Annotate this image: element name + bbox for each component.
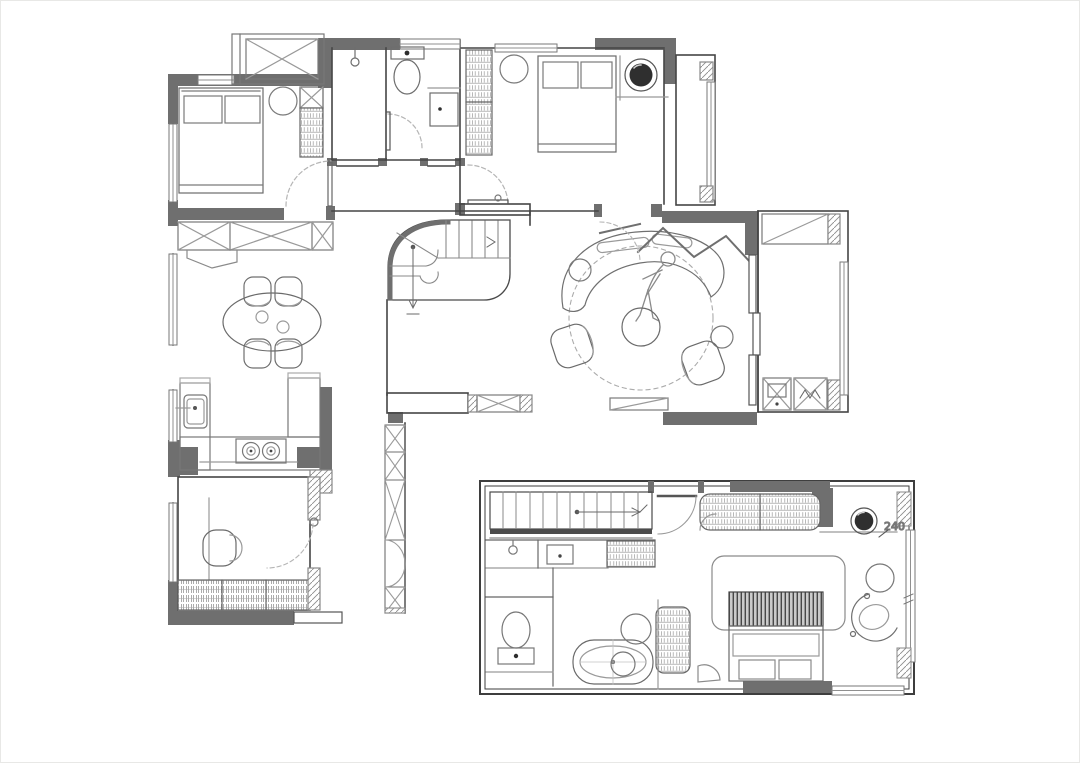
dimension-240: 240 — [879, 520, 905, 537]
shower-head-icon — [509, 540, 517, 554]
bedside-lamp — [851, 508, 877, 534]
toilet — [486, 612, 553, 672]
kitchen-sink — [176, 395, 207, 428]
side-table-left — [569, 259, 591, 281]
washing-machine — [763, 378, 791, 410]
washbasin — [547, 545, 573, 564]
bedside-round-table — [269, 87, 297, 115]
stair-landing — [390, 250, 438, 283]
window-bottom — [832, 686, 904, 695]
tv-cabinet — [610, 398, 668, 410]
door-arc — [286, 161, 331, 206]
wardrobe — [700, 494, 820, 530]
main-floor-plan — [168, 34, 848, 625]
dining-table — [223, 293, 321, 351]
side-table-right — [711, 326, 733, 348]
door-leaf — [328, 162, 332, 206]
sill-hatch — [828, 380, 840, 410]
floorplan-page: 240 — [0, 0, 1080, 763]
bathroom-main — [351, 47, 460, 150]
upper-floor-plan: 240 — [480, 481, 915, 695]
dryer-unit — [794, 378, 827, 410]
wardrobe — [300, 87, 323, 157]
bathtub — [573, 640, 653, 684]
floorplan-drawing: 240 — [0, 0, 1080, 763]
bottom-wall-extension — [294, 612, 342, 623]
round-stool — [621, 614, 651, 644]
balcony-cabinet — [762, 214, 840, 244]
south-wall-cabinet — [468, 395, 532, 412]
bookshelf-row — [178, 580, 310, 610]
window-bedroom-right-top — [495, 44, 557, 52]
dining-room — [178, 222, 333, 368]
swivel-chair — [851, 594, 898, 642]
shower-head-icon — [351, 48, 359, 66]
round-table — [866, 564, 894, 592]
treads — [503, 492, 638, 529]
toilet — [391, 47, 424, 94]
window-top-bedroom-left — [198, 75, 234, 85]
entry-door — [658, 496, 696, 534]
shelf-unit — [656, 607, 690, 673]
door-arc — [388, 114, 422, 148]
armchair-right — [677, 338, 728, 389]
kitchen — [176, 373, 332, 493]
stair-edge-band — [490, 529, 652, 534]
sill-bottom-right — [897, 648, 911, 678]
staircase-main — [388, 220, 510, 314]
window-balcony-bedroom-right — [707, 82, 715, 200]
round-stool-small — [611, 652, 635, 676]
wall-cabinet-row — [178, 222, 333, 268]
bedside-lamp — [616, 59, 668, 97]
bed — [538, 56, 620, 152]
door-arc — [468, 165, 508, 204]
bed — [729, 592, 823, 681]
corner-stool — [698, 665, 720, 682]
staircase-upper — [490, 492, 696, 538]
walls — [168, 38, 758, 625]
window-right — [904, 530, 915, 662]
window-left-wall — [169, 124, 177, 582]
bedroom-upper: 240 — [698, 494, 905, 682]
window-balcony-living — [840, 262, 848, 395]
outer-walls — [480, 481, 914, 694]
bedroom-left — [179, 87, 332, 206]
tall-cabinet-column — [385, 425, 405, 613]
round-side-table — [500, 55, 528, 83]
storage-shelf — [607, 541, 655, 567]
washbasin — [428, 88, 460, 126]
bed — [179, 88, 263, 193]
bathroom-upper — [486, 540, 690, 689]
living-room — [468, 222, 760, 412]
study-room — [178, 477, 342, 623]
door-leaf — [468, 195, 508, 204]
balcony-living — [762, 214, 840, 410]
dining-chairs — [244, 277, 302, 368]
armchair-left — [548, 321, 598, 371]
cooktop — [236, 439, 286, 463]
